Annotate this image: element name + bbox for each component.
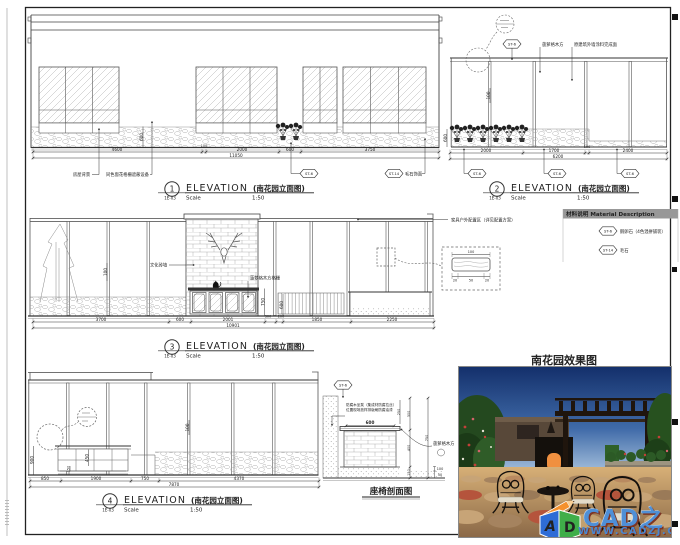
dim-text: 100 bbox=[201, 144, 207, 148]
window-2 bbox=[196, 67, 277, 133]
annotation-label: 菠萝格木方 bbox=[433, 440, 455, 447]
dim-text: 750 bbox=[425, 435, 429, 441]
dim-text: 4370 bbox=[234, 476, 245, 481]
seat-dimensions: 250 300 400 150 750 100 50 bbox=[397, 397, 443, 480]
scale-label: Scale bbox=[124, 508, 139, 514]
view-number: 1 bbox=[170, 185, 175, 194]
view-number: 3 bbox=[170, 343, 175, 352]
scale-value: 1:50 bbox=[252, 196, 265, 202]
scale-value: 1:50 bbox=[577, 196, 590, 202]
dim-text: 450 bbox=[84, 454, 89, 462]
annotation-label: 菠萝格木方 bbox=[542, 41, 564, 48]
dim-text: 2000 bbox=[237, 147, 248, 152]
elevation-3: 100 20 50 20 文化砖墙 菠萝格木方格栅 家具户外配置区（详见配置方案… bbox=[28, 214, 515, 360]
seat-body bbox=[340, 427, 400, 468]
annotation-label: 原建筑外墙涂料完成面 bbox=[574, 41, 618, 48]
logo-letter-d: D bbox=[564, 520, 576, 536]
dim-text: 2250 bbox=[387, 317, 398, 322]
dim-text: 150 bbox=[407, 469, 411, 475]
dim-text: 20 bbox=[453, 279, 457, 283]
elevation-4: 850 1900 750 4370 7870 900 450 150 100 4… bbox=[28, 372, 320, 514]
elev4-title: 4 1E-03 ELEVATION (南花园立面图) Scale 1:50 bbox=[96, 494, 252, 514]
scale-label: Scale bbox=[186, 196, 201, 202]
dim-text: 100 bbox=[584, 145, 590, 149]
dim-text: 50 bbox=[469, 279, 473, 283]
dim-text: 600 bbox=[366, 420, 375, 425]
annotation-label: 同色窗花格栅遮蔽设备 bbox=[106, 171, 150, 178]
watermark-logo: A D bbox=[537, 501, 583, 538]
dim-text: 900 bbox=[29, 456, 34, 464]
dim-text: 1900 bbox=[91, 476, 102, 481]
dim-text: 600 bbox=[286, 147, 294, 152]
material-tag: ST-14 bbox=[389, 172, 400, 176]
dim-text: 600 bbox=[176, 317, 184, 322]
elev1-title: 1 1E-03 ELEVATION (南花园立面图) Scale 1:50 bbox=[158, 182, 314, 202]
sheet-ref: 1E-03 bbox=[102, 508, 114, 513]
view-number: 4 bbox=[108, 497, 113, 506]
material-tag: ST-14 bbox=[603, 249, 614, 253]
dim-text: 400 bbox=[407, 445, 411, 451]
cad-drawing-sheet: 4600 100 2000 600 3750 11050 600 房屋背景 同色… bbox=[0, 0, 680, 545]
dim-text: 250 bbox=[397, 409, 401, 415]
material-table: 材料说明 Material Description ST-6 鹅卵石（4色混拼铺… bbox=[563, 209, 678, 262]
sheet-ref: 1E-03 bbox=[489, 196, 501, 201]
sheet-ref: 1E-03 bbox=[164, 196, 176, 201]
dim-text: 100 bbox=[468, 250, 474, 254]
material-tag: ST-6 bbox=[305, 172, 314, 176]
dim-text: 300 bbox=[407, 411, 411, 417]
dim-text: 200 bbox=[278, 315, 284, 319]
dim-text: 50 bbox=[438, 473, 442, 477]
scale-label: Scale bbox=[511, 196, 526, 202]
material-tag: ST-6 bbox=[473, 172, 482, 176]
view-number: 2 bbox=[495, 185, 500, 194]
seat-note: 防腐木坐凳（集成材防腐拉丝） 位置现场放样排版刷防腐油漆 600 bbox=[331, 402, 396, 427]
annotation-label: 菠萝格木方格栅 bbox=[250, 275, 281, 282]
material-table-header: 材料说明 Material Description bbox=[566, 210, 655, 218]
seat-section-title: 座椅剖面图 bbox=[362, 486, 420, 499]
scale-value: 1:50 bbox=[190, 508, 203, 514]
dim-text: 100 bbox=[185, 423, 190, 431]
material-desc: 鹅卵石（4色混拼铺装） bbox=[620, 228, 666, 235]
dim-text: 1850 bbox=[312, 317, 323, 322]
dim-text: 4600 bbox=[112, 147, 123, 152]
note-line: 位置现场放样排版刷防腐油漆 bbox=[346, 407, 393, 412]
logo-letter-a: A bbox=[544, 519, 556, 535]
material-tag: ST-6 bbox=[553, 172, 562, 176]
annotation-label: 家具户外配置区（详见配置方案） bbox=[451, 217, 515, 224]
material-tag: ST-6 bbox=[508, 43, 517, 47]
annotation-label: 文化砖墙 bbox=[150, 262, 168, 269]
garden-render-photo: A D CAD之家 WWW.CADZJ.COM bbox=[458, 366, 672, 538]
dim-text: 750 bbox=[141, 476, 149, 481]
watermark-url: WWW.CADZJ.COM bbox=[578, 526, 672, 537]
elev2-title: 2 1E-03 ELEVATION (南花园立面图) Scale 1:50 bbox=[483, 182, 639, 202]
window-3 bbox=[303, 67, 337, 133]
dim-text: 300 bbox=[265, 315, 271, 319]
window-1 bbox=[39, 67, 119, 133]
dim-text: 100 bbox=[103, 268, 108, 276]
dim-text: 1700 bbox=[549, 148, 560, 153]
section-title: 座椅剖面图 bbox=[369, 486, 413, 497]
material-tag: ST-6 bbox=[339, 384, 348, 388]
dim-text: 600 bbox=[443, 134, 448, 142]
dim-total: 6200 bbox=[553, 154, 564, 159]
margin-stamp bbox=[5, 499, 9, 525]
dim-text: 2000 bbox=[481, 148, 492, 153]
scale-value: 1:50 bbox=[252, 354, 265, 360]
view-title-cn: (南花园立面图) bbox=[253, 183, 305, 193]
dim-text: 600 bbox=[279, 301, 284, 309]
dim-total: 11050 bbox=[229, 153, 243, 158]
elevation-1: 4600 100 2000 600 3750 11050 600 房屋背景 同色… bbox=[28, 15, 442, 202]
elev3-title: 3 1E-03 ELEVATION (南花园立面图) Scale 1:50 bbox=[158, 340, 314, 360]
dim-text: 850 bbox=[41, 476, 49, 481]
dim-total: 10901 bbox=[226, 323, 240, 328]
dim-text: 2001 bbox=[223, 317, 234, 322]
dim-text: 600 bbox=[139, 133, 144, 141]
dim-total: 7870 bbox=[169, 482, 180, 487]
elevation-2: ST-6 菠萝格木方 原建筑外墙涂料完成面 ST-6 ST-6 ST-6 200… bbox=[443, 15, 668, 202]
binding-marks bbox=[672, 14, 678, 527]
view-title-cn: (南花园立面图) bbox=[191, 495, 243, 505]
material-tag-desc: 毛石饰面 bbox=[405, 170, 423, 177]
material-tag: ST-6 bbox=[626, 172, 635, 176]
detail-callouts: 100 20 50 20 bbox=[377, 247, 500, 290]
window-4 bbox=[343, 67, 426, 133]
wood-grille bbox=[278, 293, 344, 314]
view-title-cn: (南花园立面图) bbox=[578, 183, 630, 193]
dim-text: 100 bbox=[437, 467, 443, 471]
dim-text: 3700 bbox=[96, 317, 107, 322]
note-line: 防腐木坐凳（集成材防腐拉丝） bbox=[346, 402, 396, 407]
sheet-ref: 1E-03 bbox=[164, 354, 176, 359]
scale-label: Scale bbox=[186, 354, 201, 360]
dim-text: 20 bbox=[485, 279, 489, 283]
material-tag: ST-6 bbox=[604, 230, 613, 234]
seat-section: ST-6 防腐木坐凳（集成材防腐拉丝） 位置现场放样排版刷防腐油漆 600 25… bbox=[323, 381, 455, 499]
tree-outline bbox=[40, 224, 78, 302]
material-desc: 毛石 bbox=[620, 247, 629, 254]
view-title-cn: (南花园立面图) bbox=[253, 341, 305, 351]
annotation-label: 房屋背景 bbox=[73, 171, 91, 178]
dim-text: 150 bbox=[67, 466, 71, 472]
dim-text: 100 bbox=[486, 91, 491, 99]
dim-text: 3750 bbox=[365, 147, 376, 152]
dim-text: 2400 bbox=[623, 148, 634, 153]
dim-text: 750 bbox=[260, 298, 265, 306]
